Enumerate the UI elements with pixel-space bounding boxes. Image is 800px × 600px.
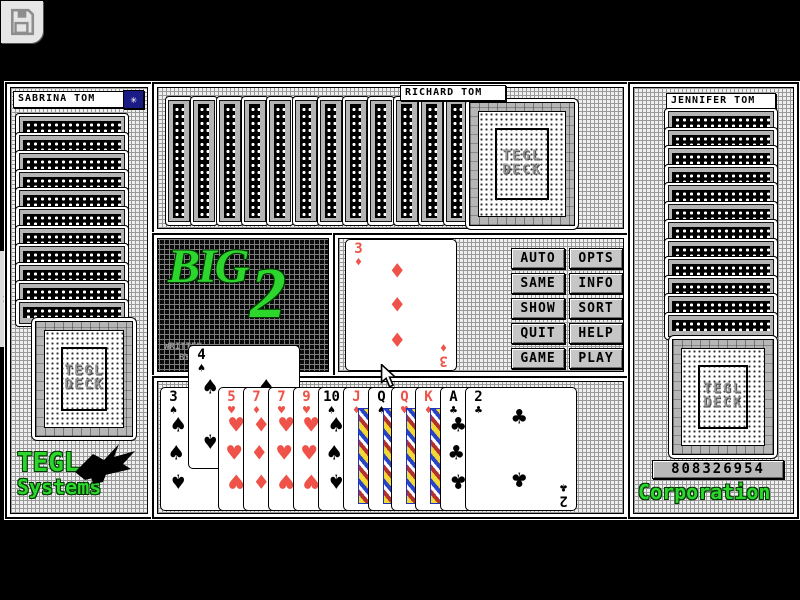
suit-pip: ♣ (512, 468, 526, 490)
button-play[interactable]: PLAY (569, 348, 623, 369)
 (672, 264, 770, 275)
suit-pip: ♣ (449, 442, 463, 464)
corporation-logo: Corporation (638, 480, 770, 504)
 (672, 209, 770, 220)
card-back (292, 96, 320, 226)
 (401, 104, 412, 218)
 (672, 172, 770, 183)
 (672, 320, 770, 331)
 (198, 104, 209, 218)
card-back (418, 96, 446, 226)
button-sort[interactable]: SORT (569, 298, 623, 319)
suit-pip: ♥ (304, 470, 318, 492)
suit-pip: ♣ (451, 470, 465, 492)
card-back (393, 96, 421, 226)
 (295, 100, 317, 222)
 (23, 121, 121, 132)
player-name-top: RICHARD TOM (400, 85, 506, 101)
suit-pip: ♣ (512, 406, 526, 428)
suit-pip: ♥ (227, 442, 241, 464)
 (173, 104, 184, 218)
suit-pip: ♠ (169, 442, 183, 464)
save-button[interactable] (1, 1, 43, 43)
suit-pip: ♦ (390, 294, 404, 316)
deck-card-top: TEGLDECK (465, 98, 579, 230)
card-back (190, 96, 218, 226)
 (672, 227, 770, 238)
 (345, 100, 367, 222)
 (23, 195, 121, 206)
suit-pip: ♦ (254, 470, 268, 492)
button-game[interactable]: GAME (511, 348, 565, 369)
 (193, 100, 215, 222)
 (320, 100, 342, 222)
card-back (317, 96, 345, 226)
suit-pip: ♦ (390, 328, 404, 350)
 (668, 315, 774, 337)
suit-pip: ♦ (252, 442, 266, 464)
score-display: 808326954 (652, 460, 784, 479)
deck-card-left: TEGLDECK (31, 317, 137, 441)
suit-pip: ♠ (171, 470, 185, 492)
 (23, 288, 121, 299)
 (421, 100, 443, 222)
button-auto[interactable]: AUTO (511, 248, 565, 269)
 (672, 301, 770, 312)
 (300, 104, 311, 218)
 (426, 104, 437, 218)
suit-pip: ♥ (304, 414, 318, 436)
 (672, 190, 770, 201)
floppy-disk-icon (9, 8, 35, 36)
card-corner: 2♣ (555, 483, 572, 508)
deck-card-right: TEGLDECK (668, 335, 778, 459)
suit-pip: ♥ (279, 414, 293, 436)
 (451, 104, 462, 218)
suit-pip: ♥ (302, 442, 316, 464)
player-panel-left: SABRINA TOM ✳ TEGLDECK TEGL Systems (5, 82, 153, 519)
suit-pip: ♠ (203, 376, 217, 398)
 (269, 100, 291, 222)
 (23, 140, 121, 151)
 (672, 153, 770, 164)
 (274, 104, 285, 218)
suit-pip: ♦ (390, 260, 404, 282)
 (396, 100, 418, 222)
 (244, 100, 266, 222)
 (350, 104, 361, 218)
suit-pip: ♠ (203, 430, 217, 452)
star-icon: ✳ (130, 93, 137, 106)
 (325, 104, 336, 218)
suit-pip: ♥ (229, 414, 243, 436)
card-back (342, 96, 370, 226)
suit-pip: ♦ (254, 414, 268, 436)
button-info[interactable]: INFO (569, 273, 623, 294)
 (168, 100, 190, 222)
 (370, 100, 392, 222)
card-back (266, 96, 294, 226)
 (224, 104, 235, 218)
suit-pip: ♠ (327, 442, 341, 464)
hand-card-2♣[interactable]: 2♣2♣♣♣ (465, 387, 577, 511)
suit-pip: ♣ (451, 414, 465, 436)
table-panel: 3 ♦ 3 ♦ ♦♦♦ AUTOOPTSSAMEINFOSHOWSORTQUIT… (333, 233, 629, 377)
swan-icon (73, 442, 139, 488)
 (249, 104, 260, 218)
game-screen: > SABRINA TOM ✳ TEGLDECK TEGL Systems TE… (0, 0, 800, 600)
 (672, 116, 770, 127)
 (672, 135, 770, 146)
card-corner: 2♣ (470, 390, 487, 415)
 (219, 100, 241, 222)
button-same[interactable]: SAME (511, 273, 565, 294)
player-panel-right: JENNIFER TOM TEGLDECK 808326954 Corporat… (628, 82, 799, 519)
suit-pip: ♥ (229, 470, 243, 492)
suit-pip: ♠ (329, 470, 343, 492)
 (23, 233, 121, 244)
button-opts[interactable]: OPTS (569, 248, 623, 269)
card-back (216, 96, 244, 226)
 (23, 214, 121, 225)
card-back (165, 96, 193, 226)
card-back (367, 96, 395, 226)
card-back (241, 96, 269, 226)
button-show[interactable]: SHOW (511, 298, 565, 319)
card-corner: 4♠ (193, 348, 210, 373)
 (23, 251, 121, 262)
 (672, 283, 770, 294)
 (672, 246, 770, 257)
suit-pip: ♠ (171, 414, 185, 436)
mouse-cursor (380, 364, 398, 388)
played-card: 3 ♦ 3 ♦ ♦♦♦ (345, 239, 457, 371)
hand-panel: 3♠♠♠♠4♠♠♠♠♠5♥♥♥♥7♦♦♦♦7♥♥♥♥9♥♥♥♥10♠♠♠♠J♦Q… (152, 376, 629, 519)
 (375, 104, 386, 218)
 (23, 158, 121, 169)
 (23, 270, 121, 281)
player-panel-top: TEGLDECK RICHARD TOM (152, 82, 629, 234)
suit-pip: ♥ (277, 442, 291, 464)
star-button[interactable]: ✳ (123, 90, 144, 109)
button-grid: AUTOOPTSSAMEINFOSHOWSORTQUITHELPGAMEPLAY (511, 248, 621, 369)
button-quit[interactable]: QUIT (511, 323, 565, 344)
button-help[interactable]: HELP (569, 323, 623, 344)
player-name-left: SABRINA TOM (13, 91, 127, 108)
suit-pip: ♠ (329, 414, 343, 436)
suit-pip: ♥ (279, 470, 293, 492)
big2-logo: BIG 2 (168, 243, 247, 291)
 (23, 177, 121, 188)
